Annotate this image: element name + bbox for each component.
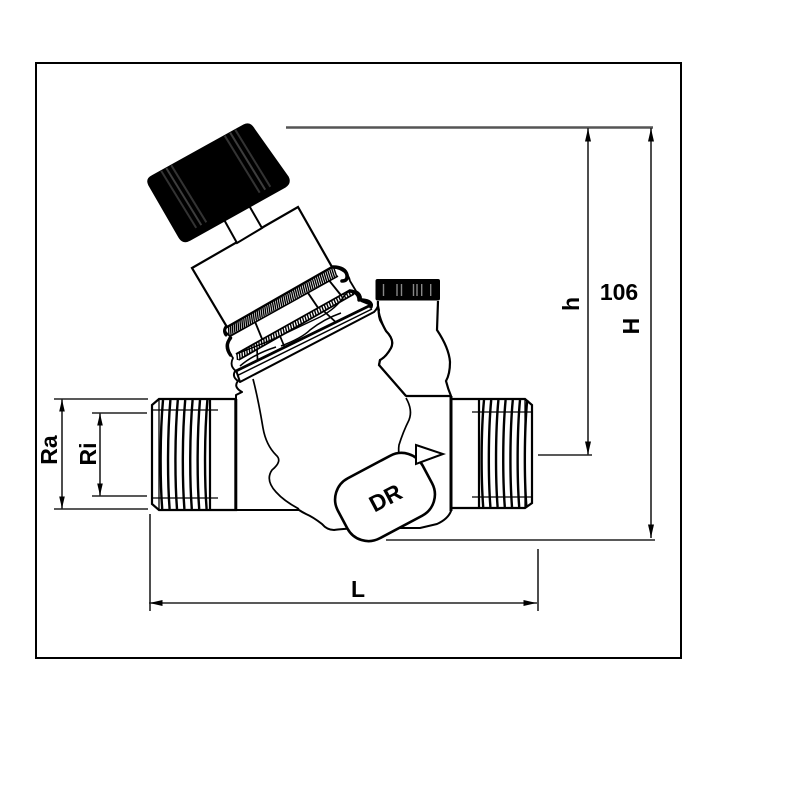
svg-text:h: h	[558, 297, 584, 311]
svg-text:Ra: Ra	[36, 435, 62, 465]
svg-text:H: H	[618, 318, 644, 335]
svg-text:106: 106	[600, 279, 638, 305]
svg-text:L: L	[351, 576, 365, 602]
svg-text:Ri: Ri	[75, 443, 101, 466]
